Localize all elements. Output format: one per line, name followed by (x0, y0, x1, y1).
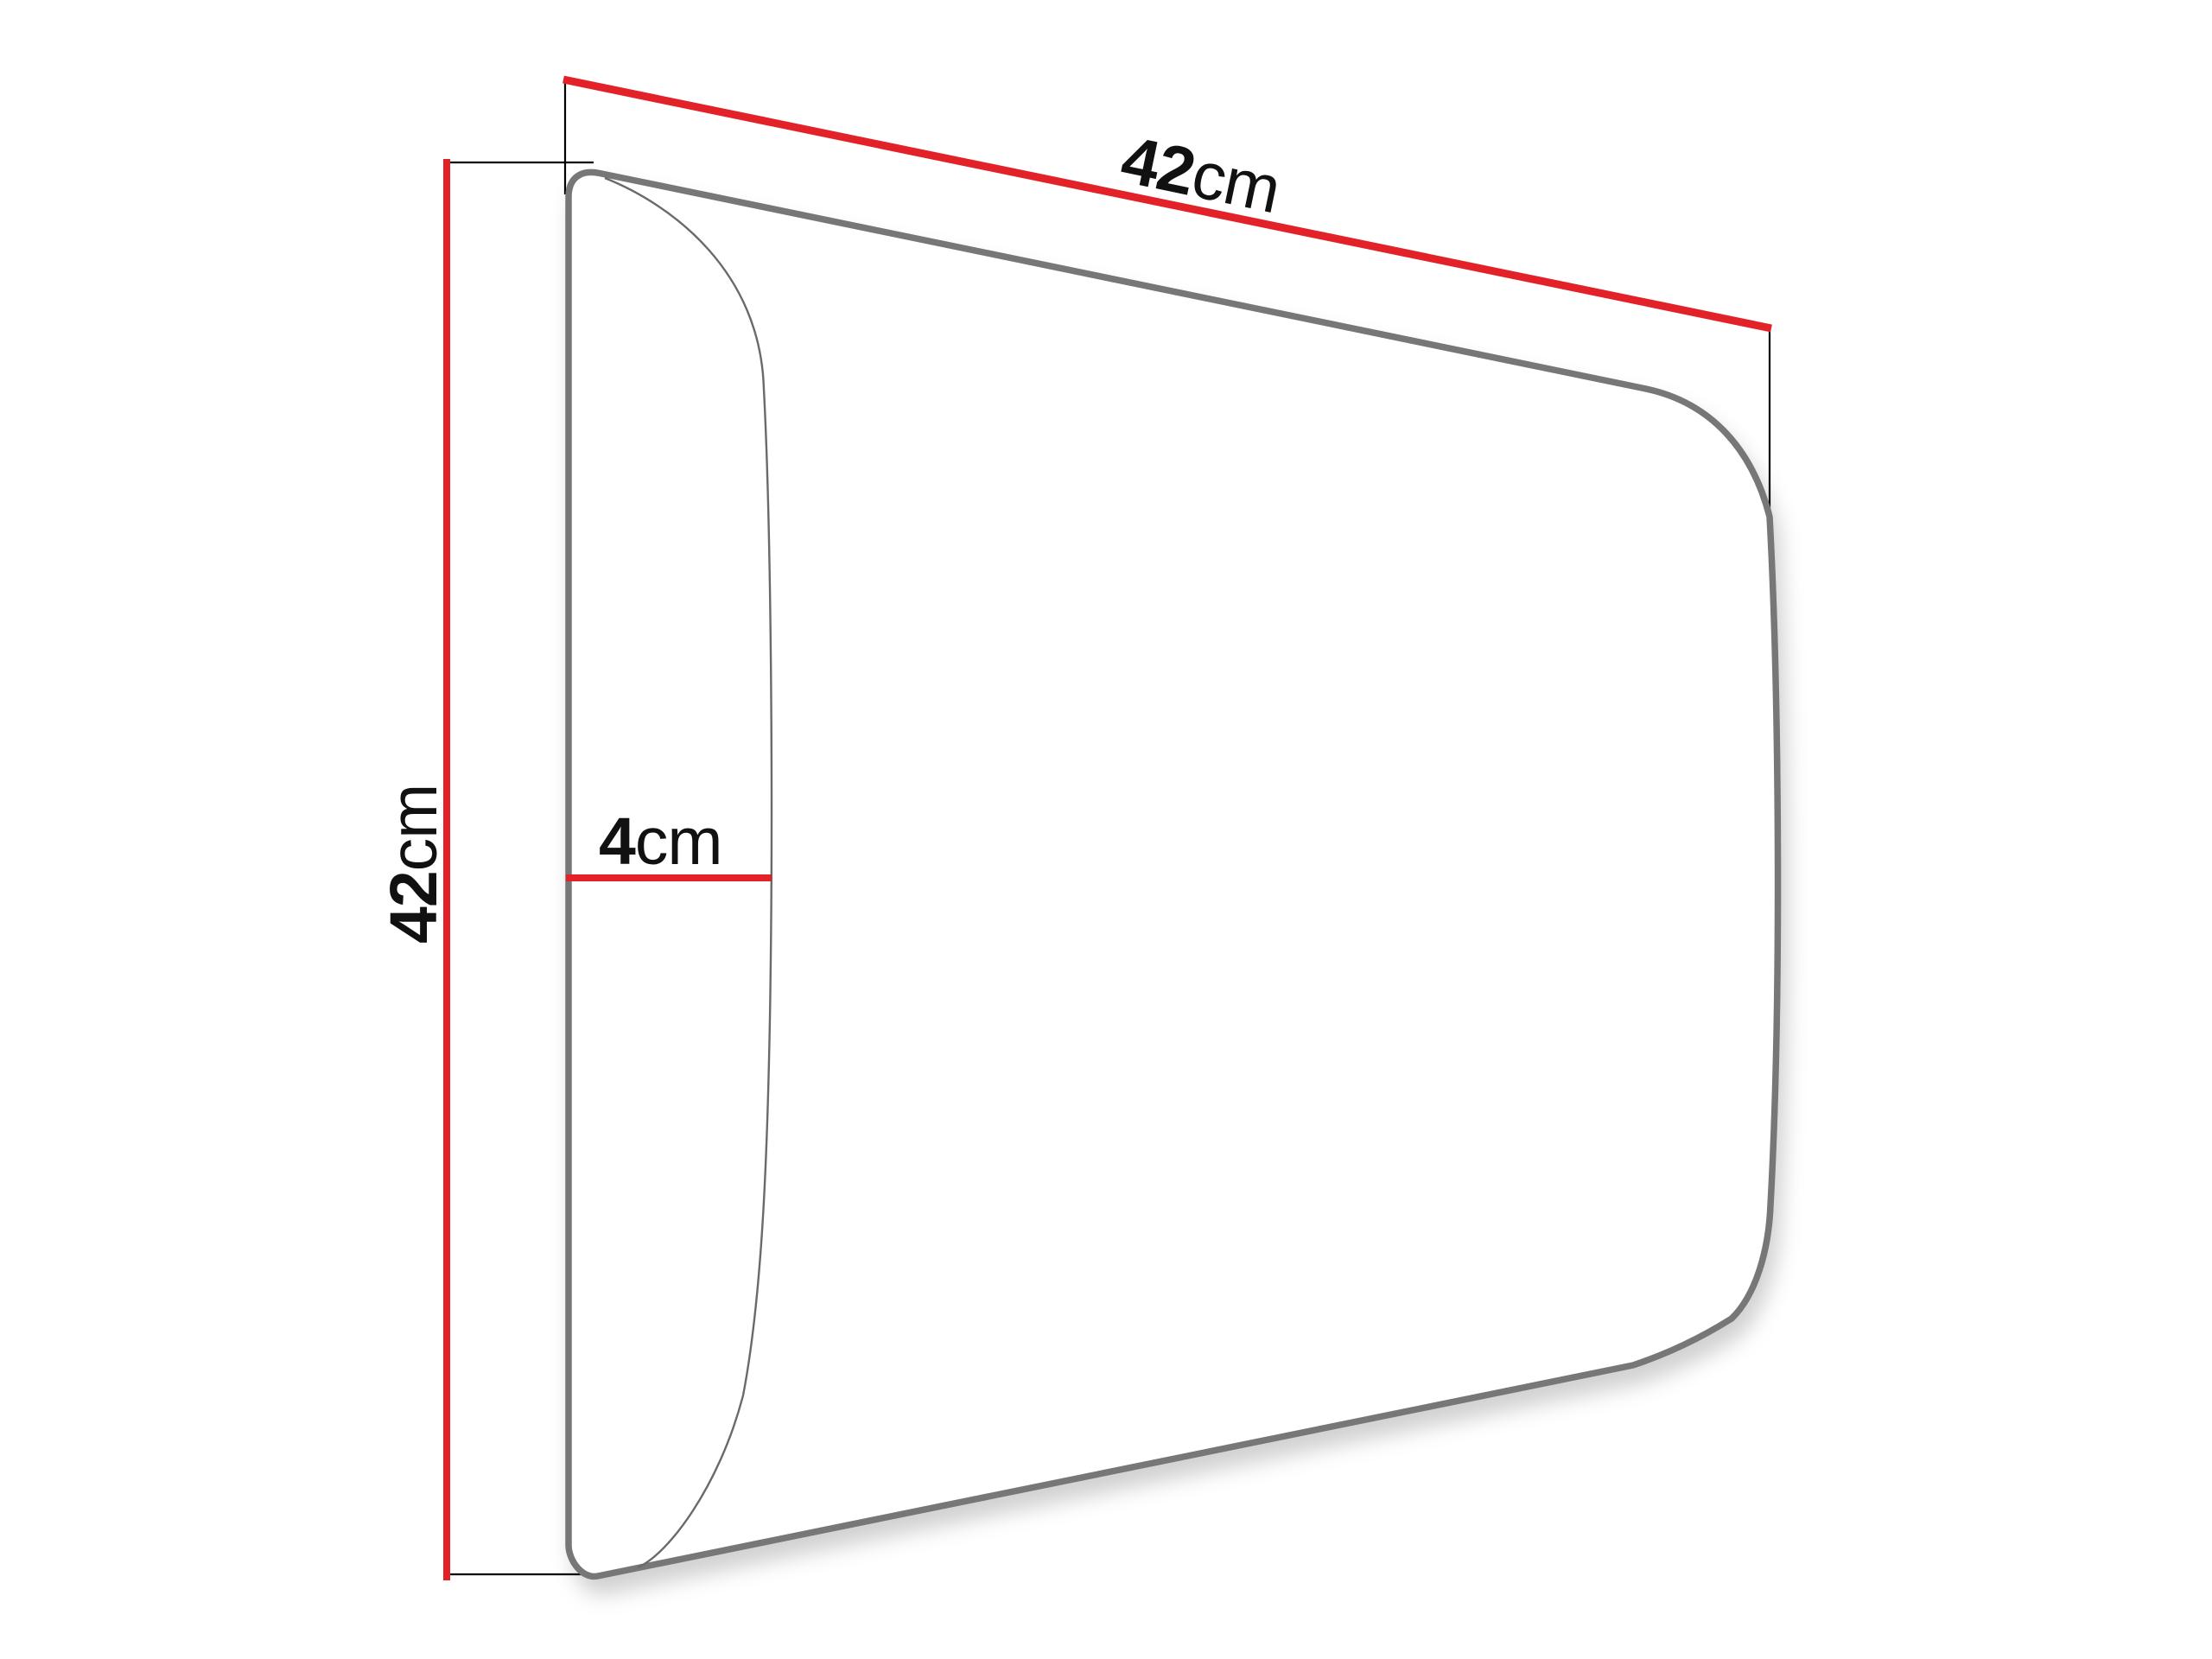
svg-text:42cm: 42cm (377, 785, 451, 944)
svg-text:4cm: 4cm (599, 804, 721, 879)
